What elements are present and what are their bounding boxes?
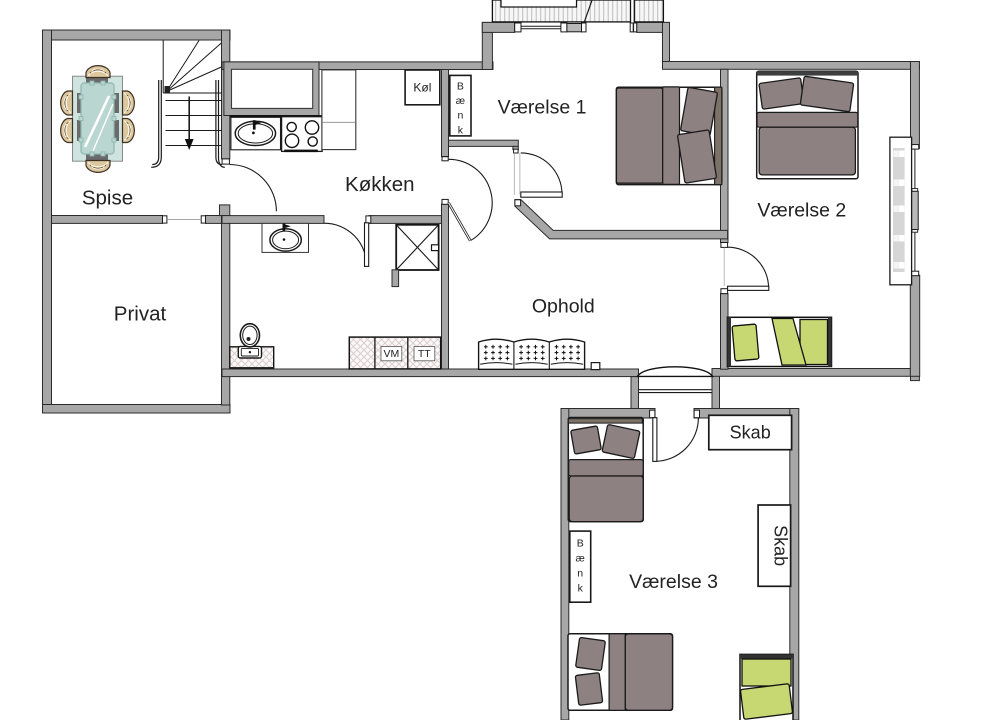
svg-text:Køkken: Køkken [345, 173, 415, 196]
svg-text:Værelse 3: Værelse 3 [629, 571, 718, 593]
svg-text:Spise: Spise [82, 187, 133, 210]
svg-text:VM: VM [384, 348, 400, 360]
svg-text:B: B [577, 538, 584, 550]
svg-text:Køl: Køl [413, 81, 431, 95]
svg-text:Værelse 2: Værelse 2 [757, 200, 846, 222]
svg-text:TT: TT [418, 348, 431, 360]
svg-text:k: k [458, 124, 464, 136]
svg-text:Skab: Skab [730, 423, 771, 443]
svg-text:k: k [578, 583, 584, 595]
svg-text:æ: æ [576, 553, 585, 565]
svg-text:Værelse 1: Værelse 1 [498, 97, 587, 119]
svg-text:n: n [457, 110, 463, 122]
svg-text:Skab: Skab [770, 525, 790, 566]
svg-text:Privat: Privat [114, 303, 167, 326]
svg-text:Ophold: Ophold [532, 296, 595, 318]
svg-text:æ: æ [456, 95, 465, 107]
svg-text:B: B [457, 81, 464, 93]
svg-text:n: n [577, 568, 583, 580]
